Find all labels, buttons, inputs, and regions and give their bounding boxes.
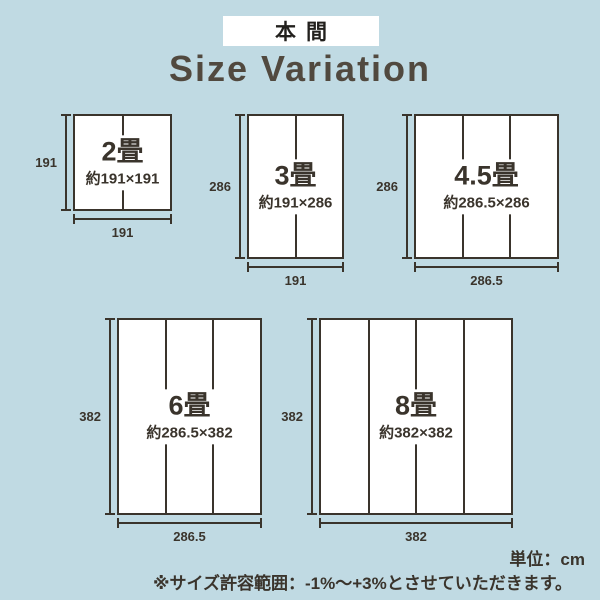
mat-name-label: 2畳 — [86, 137, 160, 165]
width-dimension-label: 286.5 — [117, 529, 262, 544]
height-dimension-label: 191 — [13, 155, 57, 170]
width-dimension-label: 382 — [319, 529, 513, 544]
mat-label: 8畳 約382×382 — [376, 389, 456, 444]
width-dimension-line — [414, 262, 559, 272]
mat-name-label: 8畳 — [379, 391, 453, 419]
unit-label: 単位：cm — [509, 545, 585, 570]
size-variation-infographic: 本間 Size Variation 2畳 約191×191 191 191 3畳… — [0, 0, 600, 600]
height-dimension-label: 286 — [187, 179, 231, 194]
mat-name-label: 3畳 — [259, 161, 333, 189]
width-dimension-line — [319, 518, 513, 528]
mat-size-label: 約286.5×382 — [146, 421, 232, 442]
mat-size-label: 約286.5×286 — [443, 191, 529, 212]
mat-seam-line — [463, 320, 465, 513]
height-dimension-line — [307, 318, 317, 515]
mat-rect: 4.5畳 約286.5×286 — [414, 114, 559, 259]
height-dimension-label: 382 — [259, 409, 303, 424]
mat-size-label: 約382×382 — [379, 421, 453, 442]
tolerance-note: ※サイズ許容範囲：-1%〜+3%とさせていただきます。 — [153, 569, 572, 594]
standard-badge: 本間 — [223, 16, 379, 46]
width-dimension-line — [73, 214, 172, 224]
height-dimension-line — [105, 318, 115, 515]
height-dimension-line — [61, 114, 71, 211]
height-dimension-line — [402, 114, 412, 259]
mat-label: 6畳 約286.5×382 — [143, 389, 235, 444]
mat-label: 2畳 約191×191 — [83, 135, 163, 190]
mat-label: 3畳 約191×286 — [256, 159, 336, 214]
width-dimension-line — [247, 262, 344, 272]
mat-label: 4.5畳 約286.5×286 — [440, 159, 532, 214]
height-dimension-label: 286 — [354, 179, 398, 194]
width-dimension-label: 286.5 — [414, 273, 559, 288]
width-dimension-label: 191 — [73, 225, 172, 240]
mat-rect: 8畳 約382×382 — [319, 318, 513, 515]
page-title: Size Variation — [0, 48, 600, 90]
width-dimension-label: 191 — [247, 273, 344, 288]
mat-name-label: 6畳 — [146, 391, 232, 419]
width-dimension-line — [117, 518, 262, 528]
height-dimension-line — [235, 114, 245, 259]
mat-name-label: 4.5畳 — [443, 161, 529, 189]
mat-rect: 2畳 約191×191 — [73, 114, 172, 211]
height-dimension-label: 382 — [57, 409, 101, 424]
mat-size-label: 約191×286 — [259, 191, 333, 212]
mat-rect: 6畳 約286.5×382 — [117, 318, 262, 515]
mat-rect: 3畳 約191×286 — [247, 114, 344, 259]
mat-size-label: 約191×191 — [86, 167, 160, 188]
mat-seam-line — [368, 320, 370, 513]
